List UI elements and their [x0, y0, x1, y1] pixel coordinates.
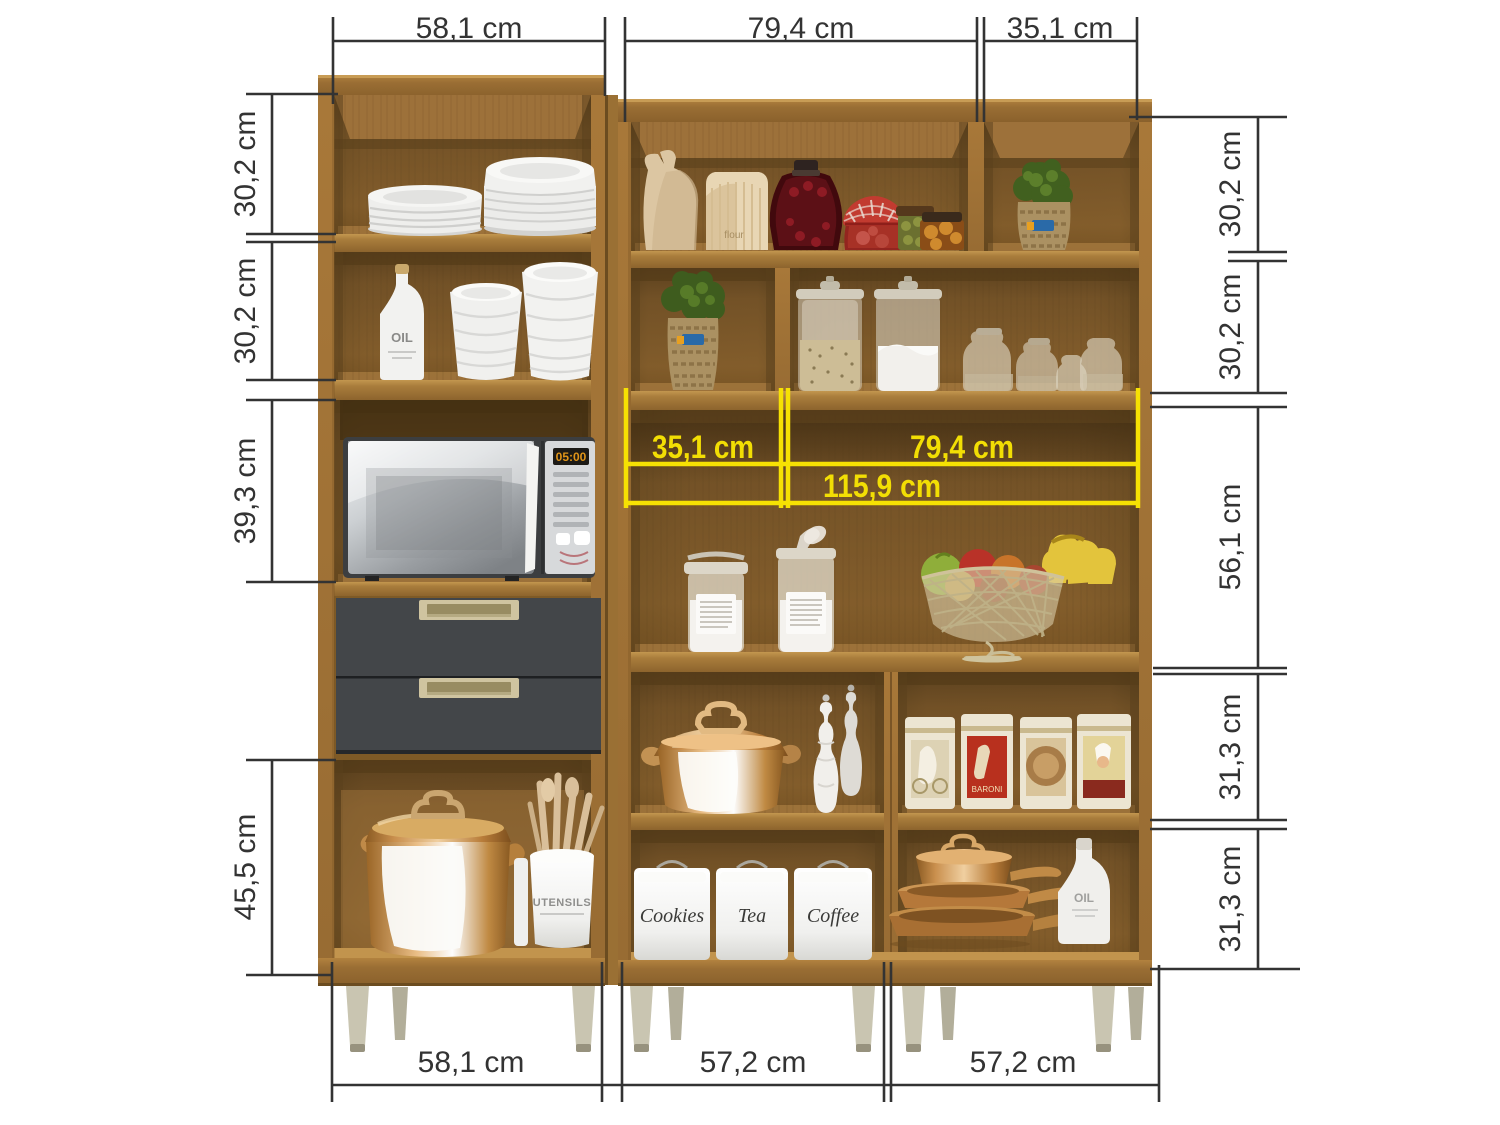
svg-text:39,3 cm: 39,3 cm [229, 438, 262, 545]
svg-text:Cookies: Cookies [640, 905, 705, 927]
svg-text:31,3 cm: 31,3 cm [1214, 846, 1247, 953]
svg-text:05:00: 05:00 [556, 450, 587, 464]
svg-text:OIL: OIL [1074, 891, 1094, 905]
svg-text:30,2 cm: 30,2 cm [1214, 131, 1247, 238]
svg-text:35,1 cm: 35,1 cm [1007, 12, 1114, 45]
svg-text:79,4 cm: 79,4 cm [748, 12, 855, 45]
svg-text:58,1 cm: 58,1 cm [416, 12, 523, 45]
svg-text:BARONI: BARONI [972, 785, 1003, 794]
svg-text:30,2 cm: 30,2 cm [229, 111, 262, 218]
svg-text:30,2 cm: 30,2 cm [229, 258, 262, 365]
svg-text:Coffee: Coffee [807, 905, 859, 927]
svg-text:115,9 cm: 115,9 cm [823, 468, 941, 504]
svg-text:flour: flour [724, 230, 744, 241]
svg-text:57,2 cm: 57,2 cm [970, 1046, 1077, 1079]
svg-text:45,5 cm: 45,5 cm [229, 814, 262, 921]
svg-text:58,1 cm: 58,1 cm [418, 1046, 525, 1079]
svg-text:57,2 cm: 57,2 cm [700, 1046, 807, 1079]
svg-text:31,3 cm: 31,3 cm [1214, 694, 1247, 801]
svg-text:30,2 cm: 30,2 cm [1214, 274, 1247, 381]
svg-text:35,1 cm: 35,1 cm [652, 429, 754, 465]
svg-text:79,4 cm: 79,4 cm [910, 429, 1014, 465]
svg-text:UTENSILS: UTENSILS [533, 897, 591, 909]
svg-text:56,1 cm: 56,1 cm [1214, 484, 1247, 591]
svg-text:OIL: OIL [391, 330, 413, 345]
svg-text:Tea: Tea [738, 905, 766, 927]
